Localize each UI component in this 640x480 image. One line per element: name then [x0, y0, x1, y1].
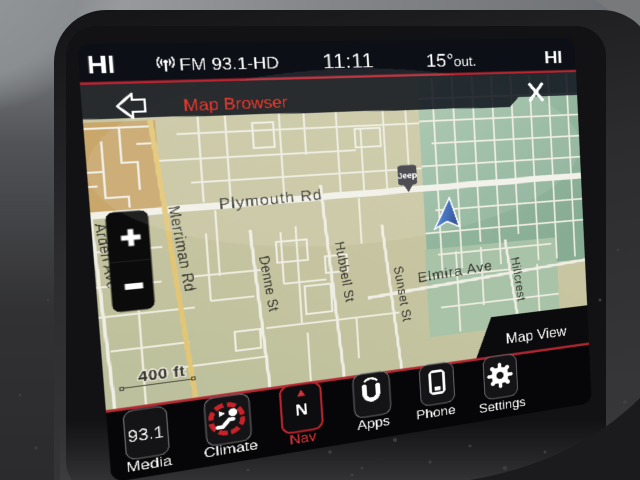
svg-text:HI: HI — [544, 48, 563, 69]
svg-text:FM 93.1-HD: FM 93.1-HD — [179, 54, 280, 75]
svg-text:HI: HI — [86, 51, 117, 79]
svg-text:N: N — [294, 400, 308, 420]
